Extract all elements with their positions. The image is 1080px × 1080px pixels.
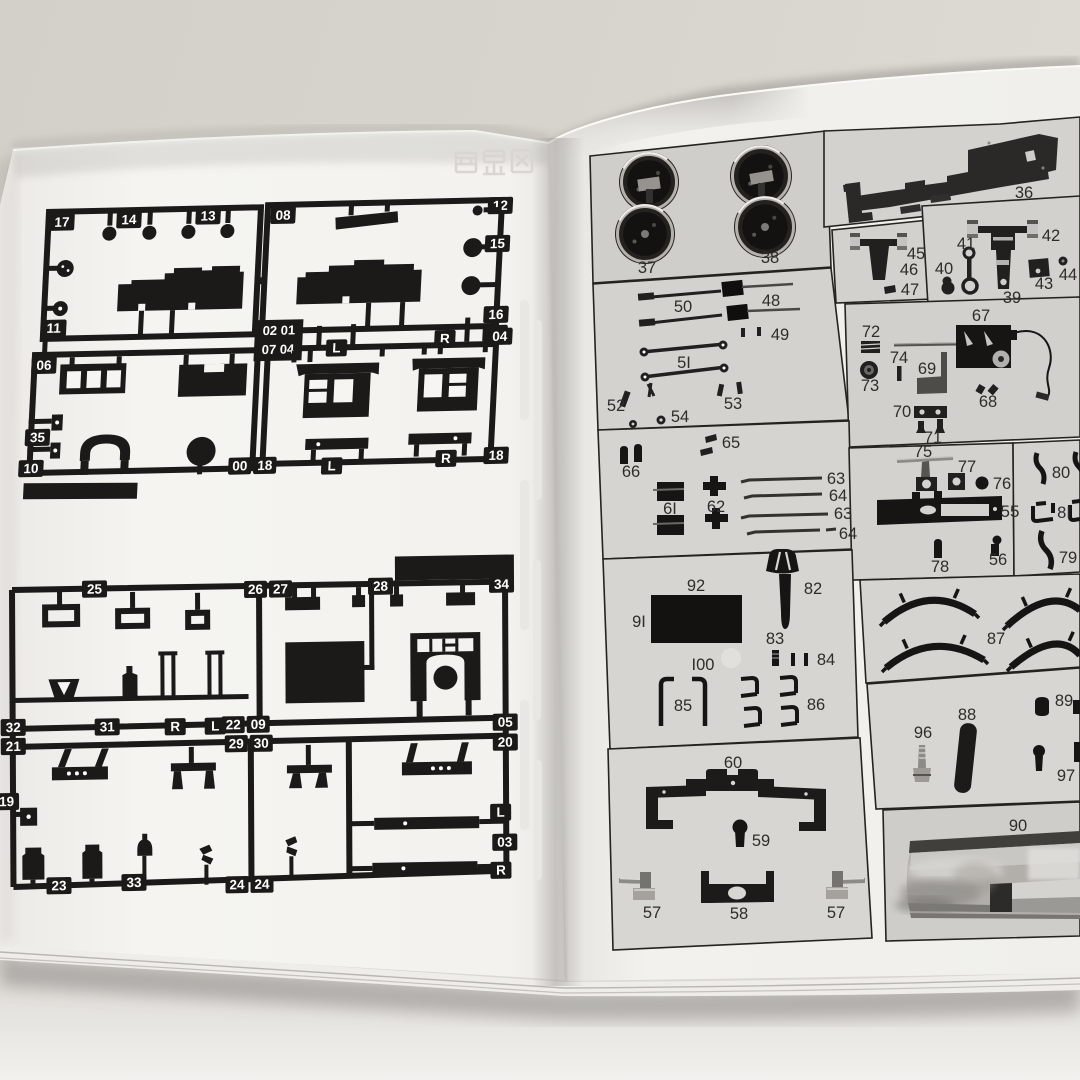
svg-text:22: 22 bbox=[226, 717, 241, 732]
svg-text:67: 67 bbox=[972, 307, 990, 325]
svg-text:63: 63 bbox=[827, 470, 845, 488]
svg-text:16: 16 bbox=[488, 307, 504, 322]
svg-text:42: 42 bbox=[1042, 227, 1060, 245]
svg-text:40: 40 bbox=[935, 260, 953, 278]
svg-text:20: 20 bbox=[498, 735, 513, 750]
svg-text:R: R bbox=[441, 451, 452, 466]
svg-text:58: 58 bbox=[730, 905, 748, 923]
svg-text:33: 33 bbox=[126, 875, 142, 890]
svg-text:L: L bbox=[496, 805, 504, 820]
svg-text:83: 83 bbox=[766, 630, 784, 648]
svg-text:26: 26 bbox=[248, 582, 264, 597]
svg-text:R: R bbox=[170, 719, 180, 734]
svg-text:80: 80 bbox=[1052, 464, 1070, 482]
svg-text:50: 50 bbox=[674, 298, 692, 316]
svg-text:56: 56 bbox=[989, 551, 1007, 569]
svg-text:48: 48 bbox=[762, 292, 780, 310]
svg-text:9I: 9I bbox=[632, 613, 646, 631]
svg-text:32: 32 bbox=[6, 720, 21, 735]
svg-text:76: 76 bbox=[993, 475, 1011, 493]
svg-text:63: 63 bbox=[834, 505, 852, 523]
svg-text:14: 14 bbox=[121, 212, 137, 227]
svg-text:90: 90 bbox=[1009, 817, 1027, 835]
svg-text:L: L bbox=[332, 340, 341, 355]
svg-text:85: 85 bbox=[674, 697, 692, 715]
svg-text:R: R bbox=[496, 863, 506, 878]
svg-text:18: 18 bbox=[257, 458, 273, 473]
svg-text:24: 24 bbox=[254, 877, 270, 892]
svg-text:49: 49 bbox=[771, 326, 789, 344]
svg-text:64: 64 bbox=[839, 525, 857, 543]
svg-text:28: 28 bbox=[373, 579, 389, 594]
svg-text:47: 47 bbox=[901, 281, 919, 299]
svg-text:97: 97 bbox=[1057, 767, 1075, 785]
svg-text:84: 84 bbox=[817, 651, 835, 669]
svg-text:5I: 5I bbox=[677, 354, 691, 372]
svg-text:88: 88 bbox=[958, 706, 976, 724]
svg-text:87: 87 bbox=[987, 630, 1005, 648]
svg-text:24: 24 bbox=[229, 877, 245, 892]
svg-text:72: 72 bbox=[862, 323, 880, 341]
svg-text:15: 15 bbox=[490, 236, 506, 251]
svg-text:03: 03 bbox=[497, 835, 513, 850]
svg-text:52: 52 bbox=[607, 397, 625, 415]
svg-text:82: 82 bbox=[804, 580, 822, 598]
svg-text:19: 19 bbox=[0, 794, 14, 809]
svg-text:8I: 8I bbox=[1057, 504, 1071, 522]
svg-text:65: 65 bbox=[722, 434, 740, 452]
svg-text:21: 21 bbox=[6, 739, 22, 754]
svg-text:64: 64 bbox=[829, 487, 847, 505]
svg-text:68: 68 bbox=[979, 393, 997, 411]
svg-text:41: 41 bbox=[957, 235, 975, 253]
svg-text:66: 66 bbox=[622, 463, 640, 481]
svg-text:43: 43 bbox=[1035, 275, 1053, 293]
svg-text:L: L bbox=[327, 458, 336, 473]
svg-text:05: 05 bbox=[498, 714, 514, 729]
svg-text:89: 89 bbox=[1055, 692, 1073, 710]
svg-text:L: L bbox=[211, 718, 219, 733]
svg-text:09: 09 bbox=[251, 717, 266, 732]
svg-text:74: 74 bbox=[890, 349, 908, 367]
svg-text:30: 30 bbox=[254, 736, 269, 751]
svg-text:29: 29 bbox=[229, 736, 244, 751]
svg-text:02 01: 02 01 bbox=[262, 322, 295, 338]
svg-text:6I: 6I bbox=[663, 500, 677, 518]
svg-text:04: 04 bbox=[492, 329, 508, 344]
svg-text:10: 10 bbox=[23, 461, 39, 476]
svg-text:34: 34 bbox=[494, 577, 510, 592]
svg-text:77: 77 bbox=[958, 458, 976, 476]
svg-text:00: 00 bbox=[232, 458, 248, 473]
svg-text:25: 25 bbox=[87, 581, 103, 596]
svg-text:23: 23 bbox=[51, 878, 67, 893]
svg-text:70: 70 bbox=[893, 403, 911, 421]
svg-text:75: 75 bbox=[914, 443, 932, 461]
svg-text:06: 06 bbox=[36, 358, 52, 373]
svg-text:44: 44 bbox=[1059, 266, 1077, 284]
svg-text:60: 60 bbox=[724, 754, 742, 772]
svg-text:57: 57 bbox=[643, 904, 661, 922]
svg-text:36: 36 bbox=[1015, 184, 1033, 202]
svg-text:18: 18 bbox=[488, 448, 504, 463]
svg-text:I00: I00 bbox=[692, 656, 715, 674]
svg-text:07 04: 07 04 bbox=[261, 341, 295, 357]
svg-text:27: 27 bbox=[273, 581, 288, 596]
svg-text:38: 38 bbox=[761, 249, 779, 267]
svg-text:17: 17 bbox=[54, 215, 70, 230]
svg-text:86: 86 bbox=[807, 696, 825, 714]
svg-text:39: 39 bbox=[1003, 289, 1021, 307]
svg-text:53: 53 bbox=[724, 395, 742, 413]
svg-text:92: 92 bbox=[687, 577, 705, 595]
svg-text:35: 35 bbox=[30, 430, 46, 445]
svg-text:78: 78 bbox=[931, 558, 949, 576]
svg-text:69: 69 bbox=[918, 360, 936, 378]
svg-text:46: 46 bbox=[900, 261, 918, 279]
svg-text:79: 79 bbox=[1059, 549, 1077, 567]
svg-text:54: 54 bbox=[671, 408, 689, 426]
svg-text:11: 11 bbox=[46, 321, 61, 336]
svg-text:96: 96 bbox=[914, 724, 932, 742]
svg-text:31: 31 bbox=[100, 719, 116, 734]
svg-text:73: 73 bbox=[861, 377, 879, 395]
svg-text:13: 13 bbox=[200, 208, 216, 223]
svg-text:62: 62 bbox=[707, 498, 725, 516]
svg-text:08: 08 bbox=[275, 208, 291, 223]
svg-text:59: 59 bbox=[752, 832, 770, 850]
svg-text:37: 37 bbox=[638, 259, 656, 277]
svg-text:55: 55 bbox=[1001, 502, 1020, 521]
svg-text:57: 57 bbox=[827, 904, 845, 922]
